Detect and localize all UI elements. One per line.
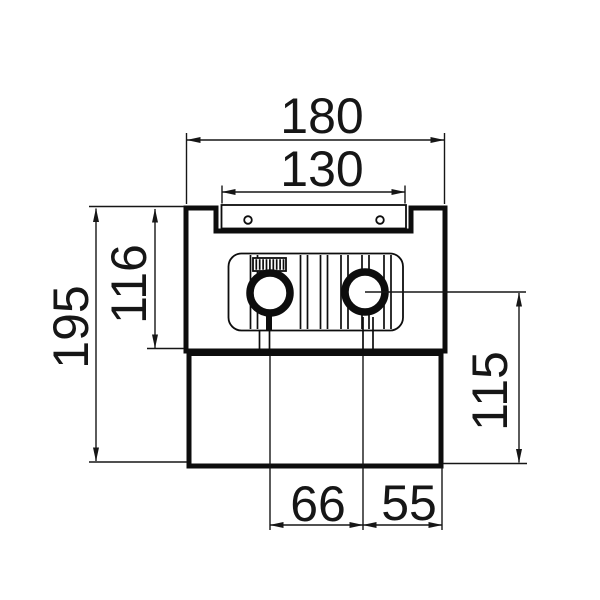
technical-drawing-canvas: 180 130 116 195 115 [0, 0, 600, 600]
dim-label-overall-height: 195 [43, 285, 99, 368]
dim-pipe-spacing-chain: 66 55 [270, 467, 442, 532]
dim-label-pipe-to-edge: 55 [381, 475, 437, 531]
dim-casing-height: 116 [101, 209, 184, 349]
pipe-left [250, 273, 290, 313]
duct-box [189, 354, 441, 467]
dim-label-pipe-axis-height: 115 [462, 351, 518, 431]
dim-label-casing-height: 116 [101, 244, 157, 324]
plate-hole-right [376, 216, 384, 224]
dim-label-overall-width: 180 [280, 88, 363, 144]
plate-hole-left [244, 216, 252, 224]
convector-dimension-drawing: 180 130 116 195 115 [0, 0, 600, 600]
dim-top-grille-width: 130 [222, 141, 405, 204]
dim-label-top-grille-width: 130 [280, 141, 363, 197]
air-vent-grille-hatch [256, 259, 283, 270]
dim-label-pipe-spacing: 66 [290, 476, 346, 532]
